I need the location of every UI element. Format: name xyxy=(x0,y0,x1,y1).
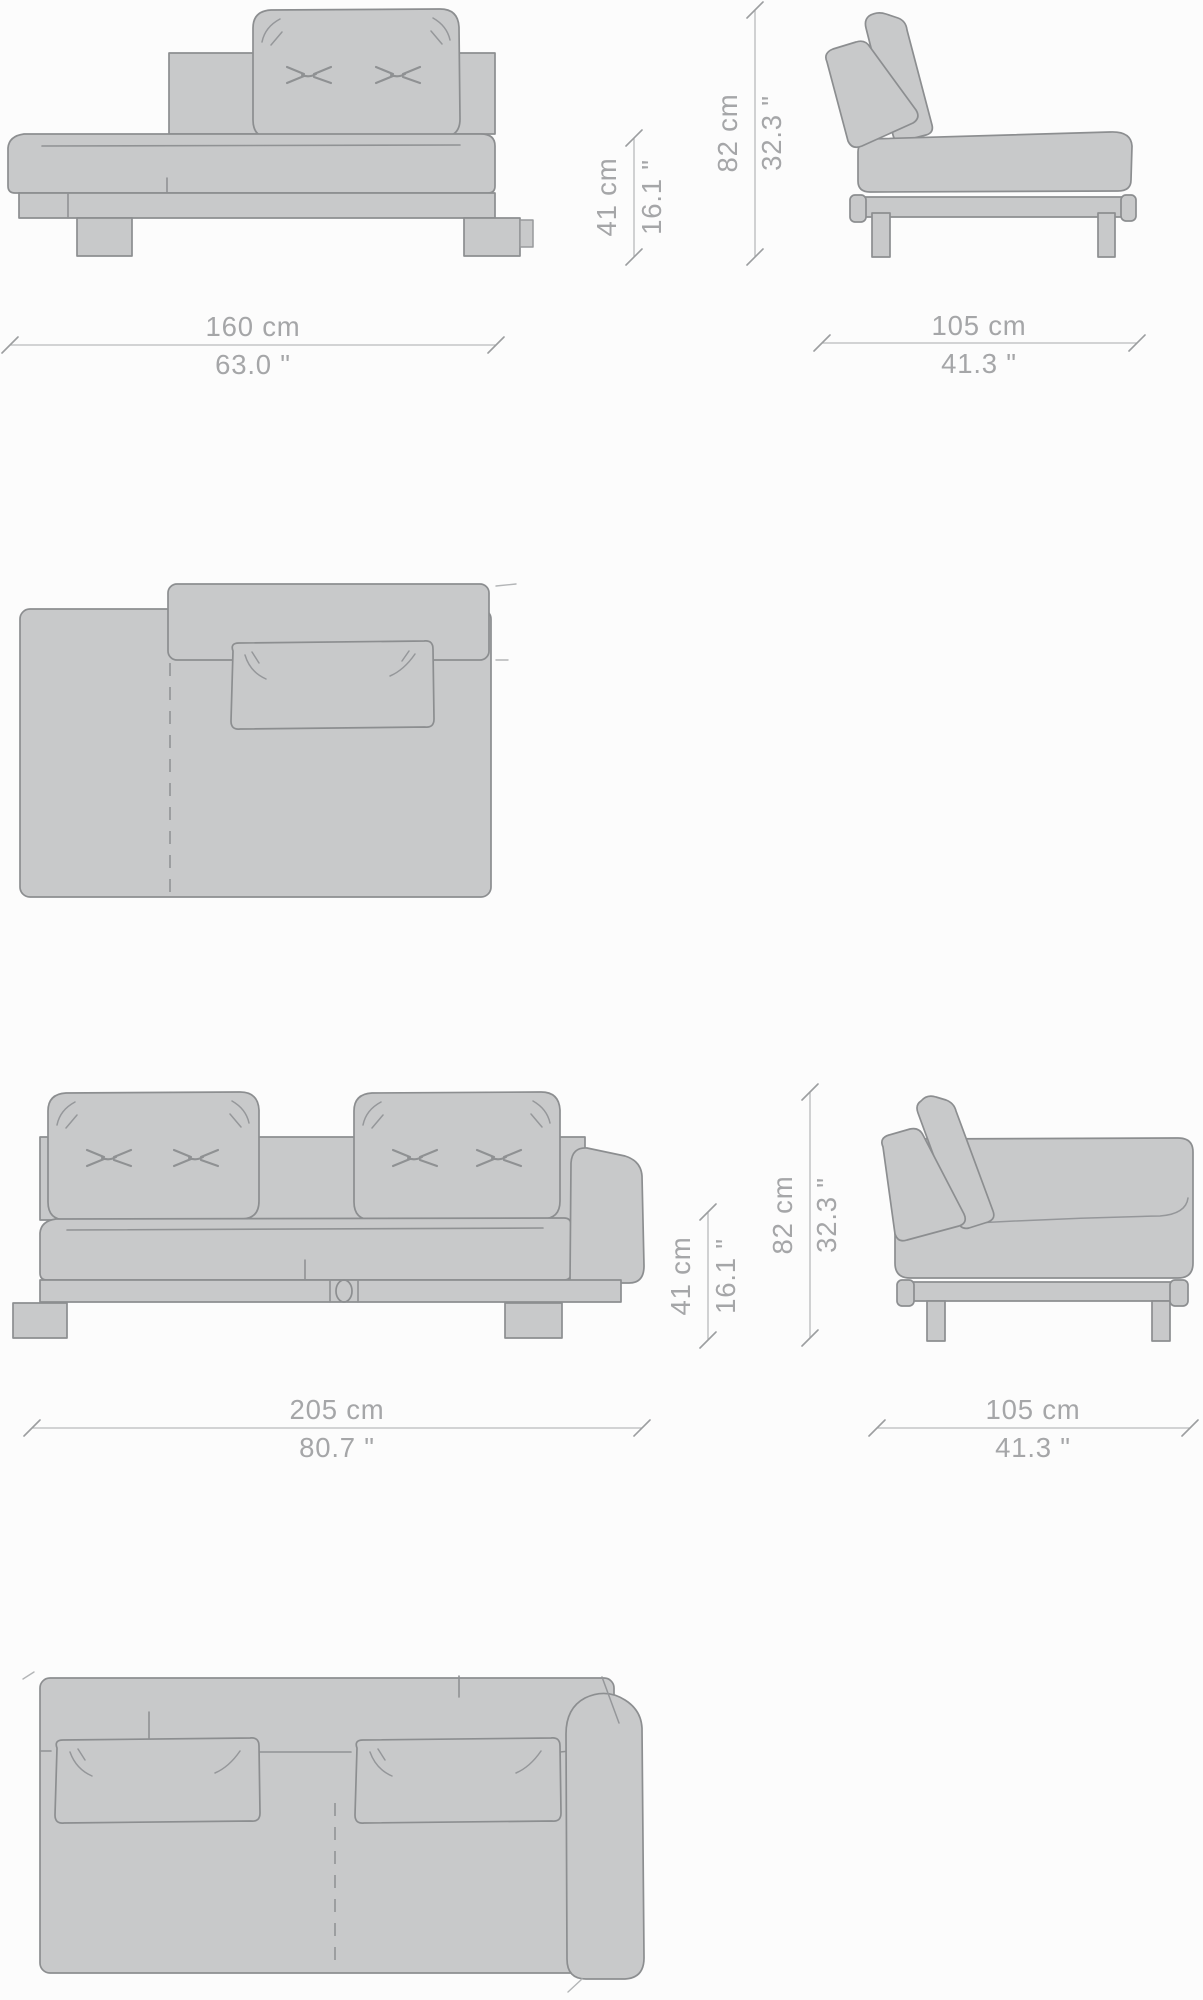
module-back-cushion xyxy=(253,9,460,138)
side-rear-leg xyxy=(1098,213,1115,257)
sofa-top-view xyxy=(23,1672,644,1992)
sofa-side-view xyxy=(882,1096,1193,1341)
drawing-canvas: 160 cm 63.0 " 41 cm 16.1 " 82 cm 32.3 " … xyxy=(0,0,1203,2000)
sofa-side-rail-cap-left xyxy=(897,1280,914,1306)
module-left-foot xyxy=(77,218,132,256)
dimension-module-width: 160 cm 63.0 " xyxy=(2,311,504,380)
side-base-rail xyxy=(863,197,1123,217)
sofa-back-cushion-right xyxy=(354,1092,560,1220)
sofa-right-foot xyxy=(505,1303,562,1338)
sofa-side-front-leg xyxy=(927,1301,945,1341)
dim-sofa-depth-in: 41.3 " xyxy=(995,1432,1071,1463)
module-right-foot xyxy=(464,218,520,256)
dim-module-seat-height-in: 16.1 " xyxy=(636,159,667,235)
sofa-side-base-rail xyxy=(905,1282,1187,1301)
sofa-top-armrest xyxy=(566,1693,644,1979)
sofa-front-view xyxy=(13,1092,644,1338)
module-seat xyxy=(8,134,495,193)
dimension-module-height: 82 cm 32.3 " xyxy=(712,2,787,265)
dim-sofa-width-in: 80.7 " xyxy=(299,1432,375,1463)
seat-seam xyxy=(42,145,460,146)
dim-sofa-height-in: 32.3 " xyxy=(811,1177,842,1253)
dim-module-depth-cm: 105 cm xyxy=(932,310,1027,341)
side-rail-cap-left xyxy=(850,195,866,222)
sofa-top-body xyxy=(40,1678,614,1973)
dim-module-depth-in: 41.3 " xyxy=(941,348,1017,379)
spec-sheet: 160 cm 63.0 " 41 cm 16.1 " 82 cm 32.3 " … xyxy=(0,0,1203,2000)
side-front-leg xyxy=(872,213,890,257)
dimension-sofa-seat-height: 41 cm 16.1 " xyxy=(665,1204,741,1348)
module-foot-tab xyxy=(520,220,533,247)
sofa-left-foot xyxy=(13,1303,67,1338)
sofa-side-rear-leg xyxy=(1152,1301,1170,1341)
reference-ticks xyxy=(496,584,516,660)
dimension-sofa-height: 82 cm 32.3 " xyxy=(767,1084,842,1346)
side-seat xyxy=(858,132,1132,192)
module-base-rail xyxy=(19,193,495,218)
dimension-module-depth: 105 cm 41.3 " xyxy=(814,310,1145,379)
dim-module-height-in: 32.3 " xyxy=(756,95,787,171)
module-front-view xyxy=(8,9,533,256)
sofa-back-cushion-left xyxy=(48,1092,259,1220)
dimension-module-seat-height: 41 cm 16.1 " xyxy=(591,130,667,265)
module-top-view xyxy=(20,584,516,897)
dim-sofa-width-cm: 205 cm xyxy=(290,1394,385,1425)
sofa-side-rail-cap-right xyxy=(1170,1280,1188,1306)
dimension-sofa-width: 205 cm 80.7 " xyxy=(24,1394,650,1463)
side-rail-cap-right xyxy=(1121,195,1136,221)
top-back-cushion xyxy=(231,641,434,729)
dimension-sofa-depth: 105 cm 41.3 " xyxy=(869,1394,1198,1463)
sofa-top-cushion-right xyxy=(355,1738,561,1823)
sofa-armrest xyxy=(570,1148,644,1283)
dim-sofa-seat-height-cm: 41 cm xyxy=(665,1237,696,1316)
dim-module-seat-height-cm: 41 cm xyxy=(591,158,622,237)
module-side-view xyxy=(826,13,1136,257)
dim-sofa-depth-cm: 105 cm xyxy=(986,1394,1081,1425)
dim-sofa-height-cm: 82 cm xyxy=(767,1176,798,1255)
dim-module-height-cm: 82 cm xyxy=(712,94,743,173)
dim-module-width-in: 63.0 " xyxy=(215,349,291,380)
dim-sofa-seat-height-in: 16.1 " xyxy=(710,1238,741,1314)
sofa-top-cushion-left xyxy=(55,1738,260,1823)
dim-module-width-cm: 160 cm xyxy=(206,311,301,342)
